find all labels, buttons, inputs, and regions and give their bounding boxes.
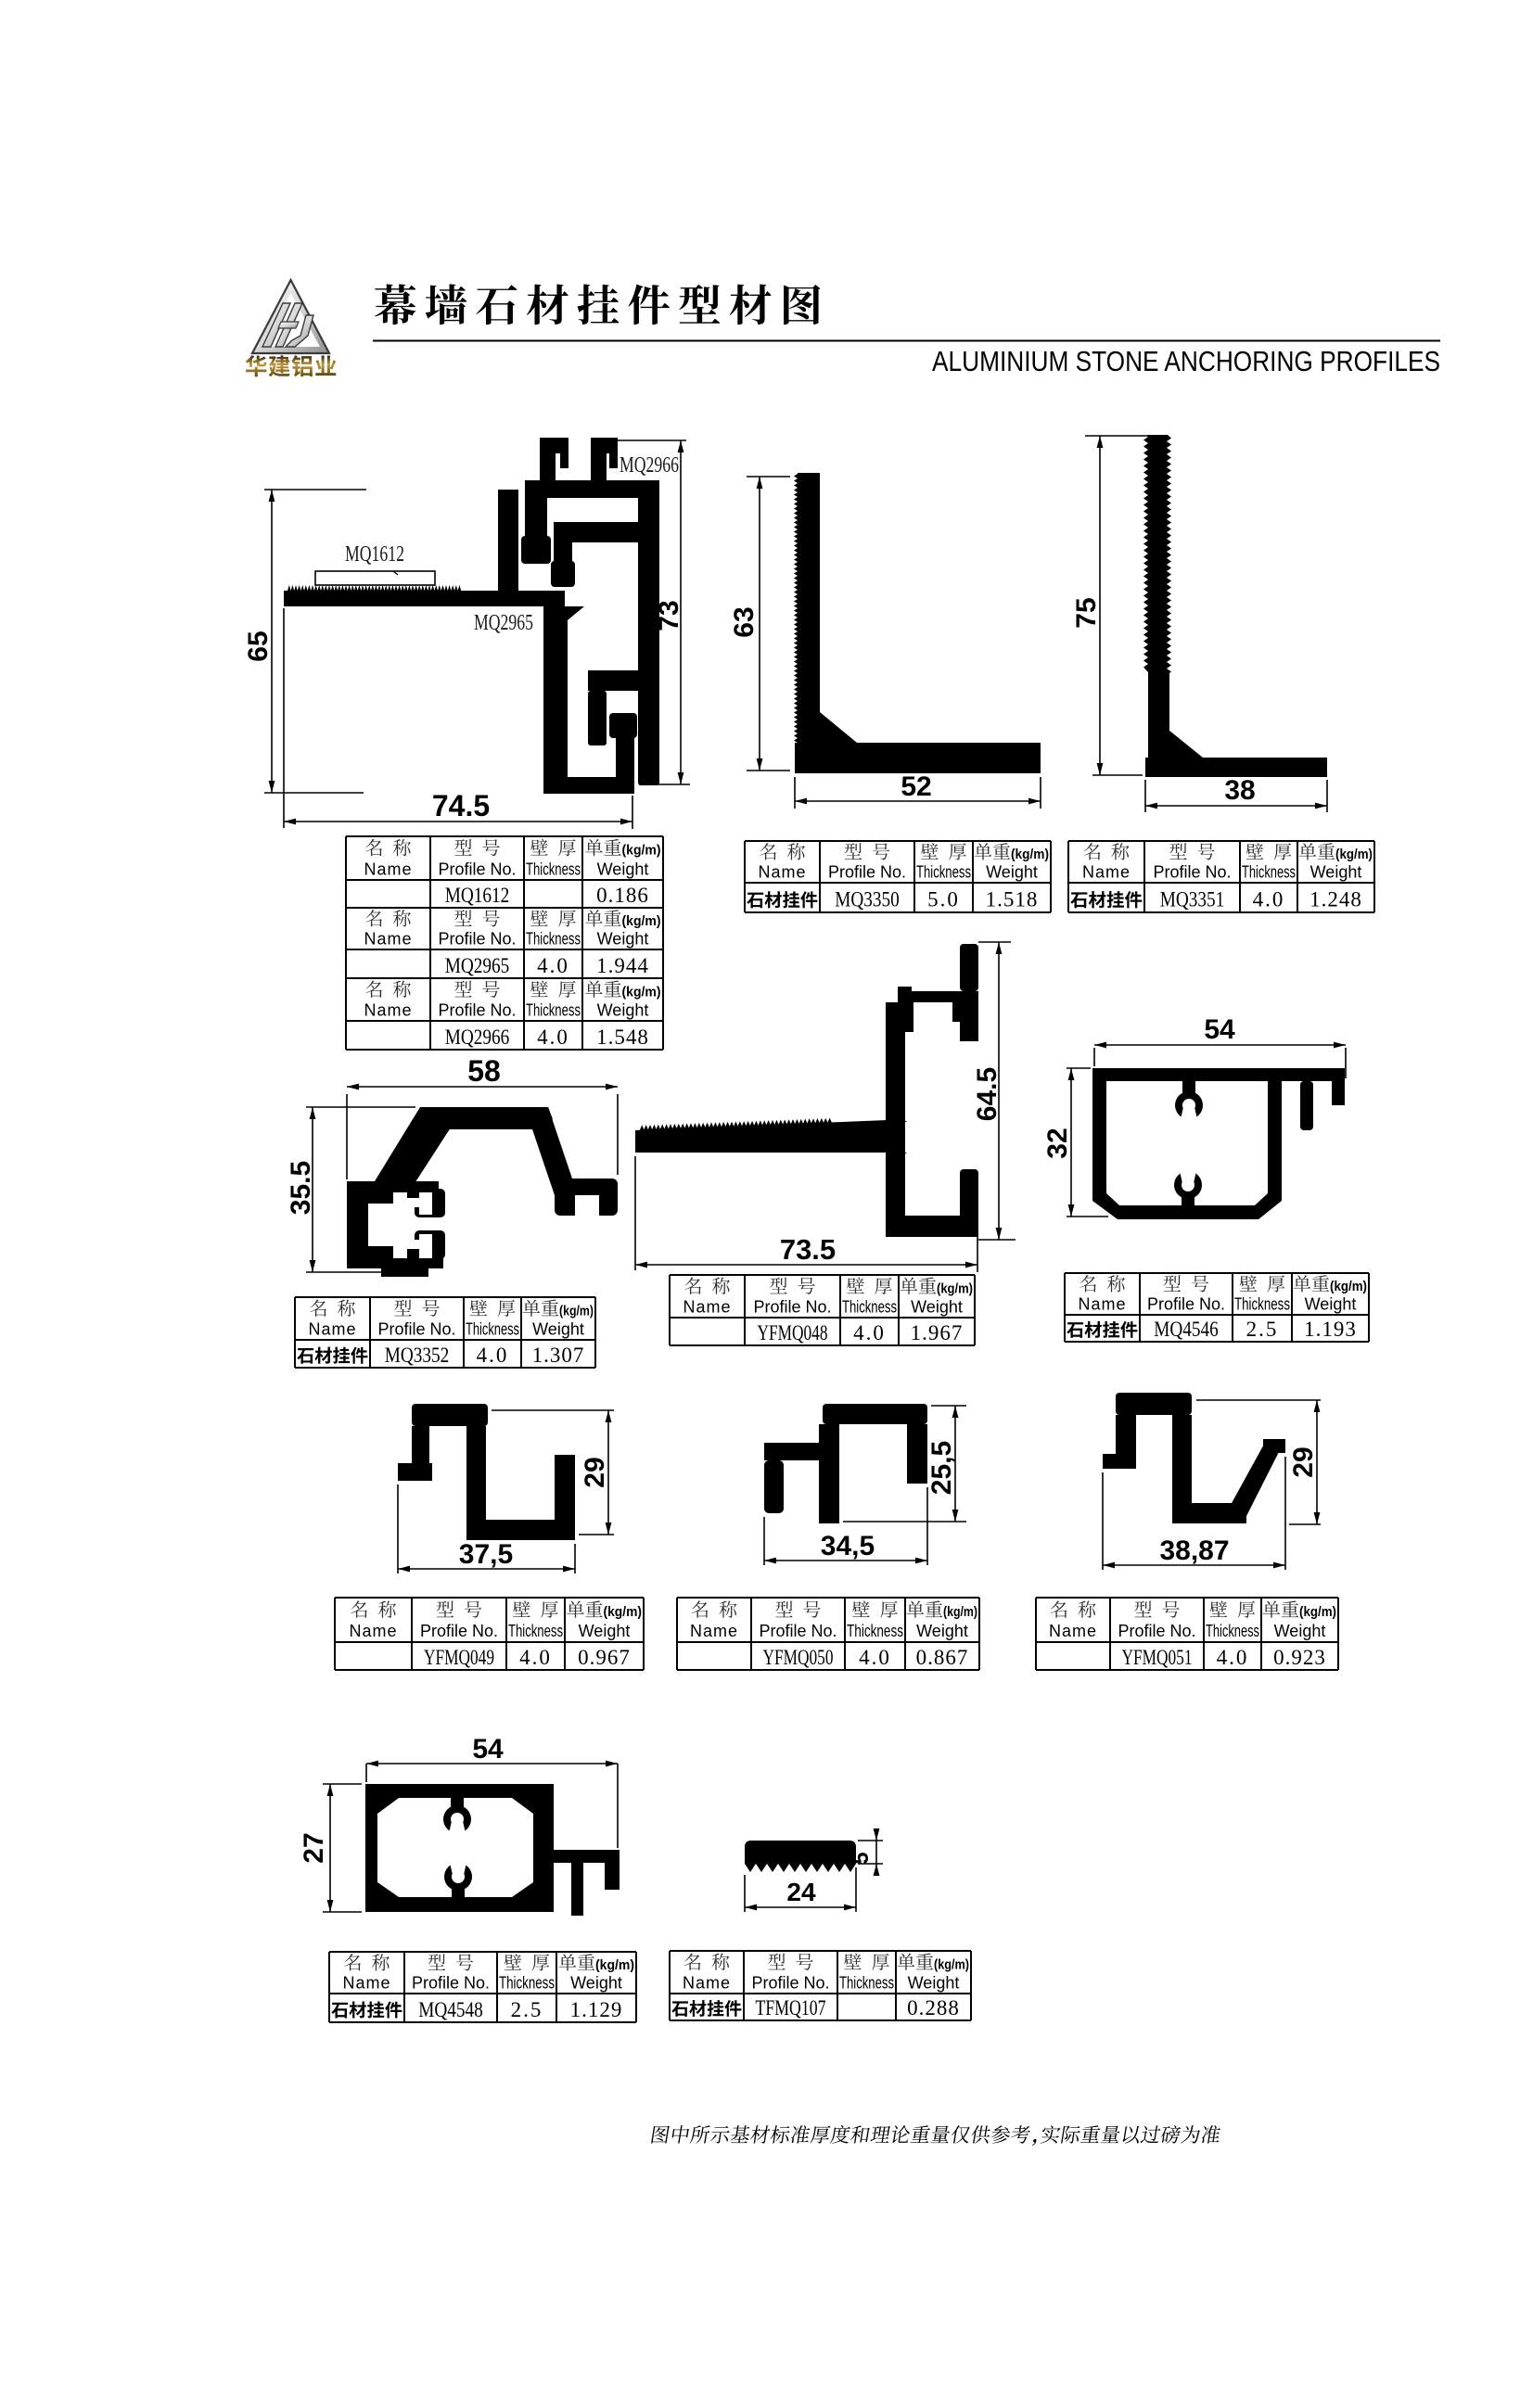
- svg-text:4.0: 4.0: [853, 1321, 886, 1344]
- svg-text:Name: Name: [364, 930, 412, 949]
- svg-text:Thickness: Thickness: [526, 1001, 581, 1020]
- svg-text:4.0: 4.0: [1253, 888, 1285, 911]
- svg-text:65: 65: [243, 631, 274, 661]
- svg-text:4.0: 4.0: [537, 954, 569, 977]
- svg-text:Thickness: Thickness: [839, 1974, 894, 1993]
- svg-text:75: 75: [1071, 597, 1102, 628]
- svg-text:5: 5: [849, 1852, 874, 1864]
- svg-text:Weight: Weight: [570, 1974, 622, 1993]
- svg-text:4.0: 4.0: [859, 1646, 891, 1669]
- svg-text:(kg/m): (kg/m): [559, 1303, 594, 1319]
- svg-text:38: 38: [1224, 775, 1255, 806]
- svg-text:YFMQ051: YFMQ051: [1122, 1646, 1193, 1669]
- svg-text:Thickness: Thickness: [466, 1320, 519, 1339]
- svg-text:54: 54: [472, 1734, 504, 1765]
- svg-text:Profile No.: Profile No.: [1118, 1622, 1195, 1640]
- svg-text:MQ2966: MQ2966: [445, 1026, 510, 1049]
- svg-text:Profile No.: Profile No.: [438, 860, 516, 878]
- svg-text:ALUMINIUM STONE ANCHORING PROF: ALUMINIUM STONE ANCHORING PROFILES: [932, 346, 1440, 377]
- svg-text:63: 63: [729, 606, 760, 637]
- svg-text:MQ2965: MQ2965: [474, 611, 533, 635]
- svg-text:(kg/m): (kg/m): [595, 1957, 634, 1973]
- svg-text:4.0: 4.0: [537, 1026, 569, 1049]
- svg-text:MQ1612: MQ1612: [345, 542, 404, 567]
- svg-text:Weight: Weight: [986, 863, 1038, 882]
- svg-text:Profile No.: Profile No.: [1153, 863, 1231, 882]
- svg-text:(kg/m): (kg/m): [604, 1604, 643, 1620]
- svg-text:Name: Name: [1049, 1622, 1097, 1640]
- svg-text:0.923: 0.923: [1273, 1646, 1326, 1669]
- svg-text:MQ2966: MQ2966: [620, 453, 679, 478]
- svg-text:24: 24: [786, 1878, 816, 1906]
- svg-text:Profile No.: Profile No.: [828, 863, 906, 882]
- svg-text:0.288: 0.288: [907, 1996, 960, 2019]
- svg-text:YFMQ050: YFMQ050: [763, 1646, 834, 1669]
- svg-text:YFMQ048: YFMQ048: [758, 1321, 828, 1344]
- svg-text:MQ3352: MQ3352: [385, 1344, 450, 1367]
- svg-text:0.186: 0.186: [596, 884, 649, 907]
- svg-text:Thickness: Thickness: [1242, 863, 1296, 882]
- svg-text:MQ4546: MQ4546: [1154, 1318, 1219, 1341]
- svg-text:(kg/m): (kg/m): [1330, 1279, 1367, 1294]
- svg-text:4.0: 4.0: [519, 1646, 552, 1669]
- svg-text:Thickness: Thickness: [508, 1622, 563, 1640]
- svg-text:Name: Name: [342, 1974, 390, 1993]
- svg-text:Name: Name: [1082, 863, 1131, 882]
- svg-text:0.967: 0.967: [578, 1646, 631, 1669]
- svg-text:MQ3350: MQ3350: [835, 888, 900, 911]
- svg-text:MQ4548: MQ4548: [418, 1998, 483, 2021]
- svg-text:Profile No.: Profile No.: [377, 1320, 455, 1339]
- svg-text:Weight: Weight: [597, 1001, 649, 1020]
- svg-text:Weight: Weight: [1274, 1622, 1326, 1640]
- svg-text:58: 58: [467, 1054, 501, 1088]
- svg-text:52: 52: [901, 771, 931, 802]
- svg-text:MQ2965: MQ2965: [445, 954, 510, 977]
- svg-text:(kg/m): (kg/m): [934, 1956, 969, 1972]
- svg-text:Thickness: Thickness: [499, 1974, 555, 1993]
- svg-text:Name: Name: [1078, 1295, 1126, 1314]
- svg-text:73.5: 73.5: [780, 1233, 836, 1266]
- svg-text:29: 29: [580, 1457, 610, 1487]
- svg-text:(kg/m): (kg/m): [1011, 847, 1049, 862]
- svg-text:Thickness: Thickness: [526, 860, 581, 878]
- svg-text:Profile No.: Profile No.: [438, 930, 516, 949]
- svg-text:5.0: 5.0: [927, 888, 960, 911]
- svg-text:34,5: 34,5: [821, 1531, 875, 1561]
- svg-text:(kg/m): (kg/m): [1335, 847, 1373, 862]
- svg-text:(kg/m): (kg/m): [937, 1280, 973, 1296]
- svg-text:MQ3351: MQ3351: [1160, 888, 1225, 911]
- svg-text:YFMQ049: YFMQ049: [424, 1646, 494, 1669]
- svg-text:Profile No.: Profile No.: [438, 1001, 516, 1020]
- svg-text:(kg/m): (kg/m): [622, 913, 661, 929]
- svg-text:TFMQ107: TFMQ107: [756, 1996, 826, 2019]
- svg-text:35.5: 35.5: [286, 1161, 316, 1215]
- svg-text:27: 27: [299, 1832, 329, 1863]
- svg-text:1.548: 1.548: [596, 1026, 649, 1049]
- svg-text:Profile No.: Profile No.: [1147, 1295, 1225, 1314]
- svg-text:(kg/m): (kg/m): [943, 1604, 977, 1620]
- svg-text:Name: Name: [364, 1001, 412, 1020]
- svg-text:0.867: 0.867: [916, 1646, 969, 1669]
- svg-text:Profile No.: Profile No.: [420, 1622, 498, 1640]
- svg-text:Thickness: Thickness: [1234, 1295, 1290, 1314]
- svg-text:Thickness: Thickness: [1206, 1622, 1259, 1640]
- svg-text:Thickness: Thickness: [847, 1622, 903, 1640]
- svg-text:1.248: 1.248: [1309, 888, 1362, 911]
- svg-text:(kg/m): (kg/m): [622, 843, 661, 859]
- svg-text:MQ1612: MQ1612: [445, 884, 510, 907]
- svg-text:38,87: 38,87: [1159, 1535, 1229, 1566]
- svg-text:Name: Name: [308, 1320, 356, 1339]
- svg-text:Name: Name: [683, 1974, 731, 1993]
- svg-text:2.5: 2.5: [1246, 1318, 1279, 1341]
- svg-text:Profile No.: Profile No.: [412, 1974, 490, 1993]
- svg-text:Thickness: Thickness: [526, 930, 581, 949]
- svg-text:29: 29: [1288, 1446, 1319, 1477]
- svg-text:1.193: 1.193: [1304, 1318, 1357, 1341]
- svg-text:4.0: 4.0: [1217, 1646, 1249, 1669]
- svg-text:Weight: Weight: [911, 1298, 963, 1317]
- svg-text:Weight: Weight: [579, 1622, 631, 1640]
- svg-text:64.5: 64.5: [972, 1067, 1003, 1121]
- svg-text:32: 32: [1042, 1128, 1073, 1158]
- svg-text:74.5: 74.5: [432, 789, 490, 822]
- svg-text:Weight: Weight: [532, 1320, 584, 1339]
- svg-text:Weight: Weight: [597, 860, 649, 878]
- svg-text:73: 73: [654, 600, 684, 631]
- svg-text:1.307: 1.307: [532, 1344, 585, 1367]
- svg-text:54: 54: [1204, 1014, 1235, 1045]
- svg-text:Thickness: Thickness: [842, 1298, 897, 1317]
- svg-text:1.129: 1.129: [570, 1998, 623, 2021]
- svg-text:Weight: Weight: [1305, 1295, 1357, 1314]
- svg-text:4.0: 4.0: [477, 1344, 509, 1367]
- svg-text:1.944: 1.944: [596, 954, 649, 977]
- svg-text:2.5: 2.5: [511, 1998, 543, 2021]
- svg-text:(kg/m): (kg/m): [622, 984, 661, 1000]
- svg-text:Name: Name: [690, 1622, 738, 1640]
- svg-text:37,5: 37,5: [459, 1539, 513, 1570]
- svg-text:Profile No.: Profile No.: [751, 1974, 829, 1993]
- svg-text:Name: Name: [758, 863, 806, 882]
- svg-text:Profile No.: Profile No.: [759, 1622, 837, 1640]
- svg-text:Name: Name: [349, 1622, 397, 1640]
- svg-text:Profile No.: Profile No.: [753, 1298, 831, 1317]
- svg-text:Weight: Weight: [1310, 863, 1362, 882]
- svg-text:Name: Name: [683, 1298, 731, 1317]
- svg-text:Weight: Weight: [916, 1622, 968, 1640]
- svg-text:(kg/m): (kg/m): [1299, 1604, 1336, 1620]
- svg-text:1.518: 1.518: [986, 888, 1039, 911]
- svg-text:Name: Name: [364, 860, 412, 878]
- svg-text:25,5: 25,5: [926, 1441, 957, 1495]
- svg-text:Weight: Weight: [597, 930, 649, 949]
- svg-text:Weight: Weight: [908, 1974, 960, 1993]
- svg-text:1.967: 1.967: [911, 1321, 964, 1344]
- svg-text:Thickness: Thickness: [916, 863, 971, 882]
